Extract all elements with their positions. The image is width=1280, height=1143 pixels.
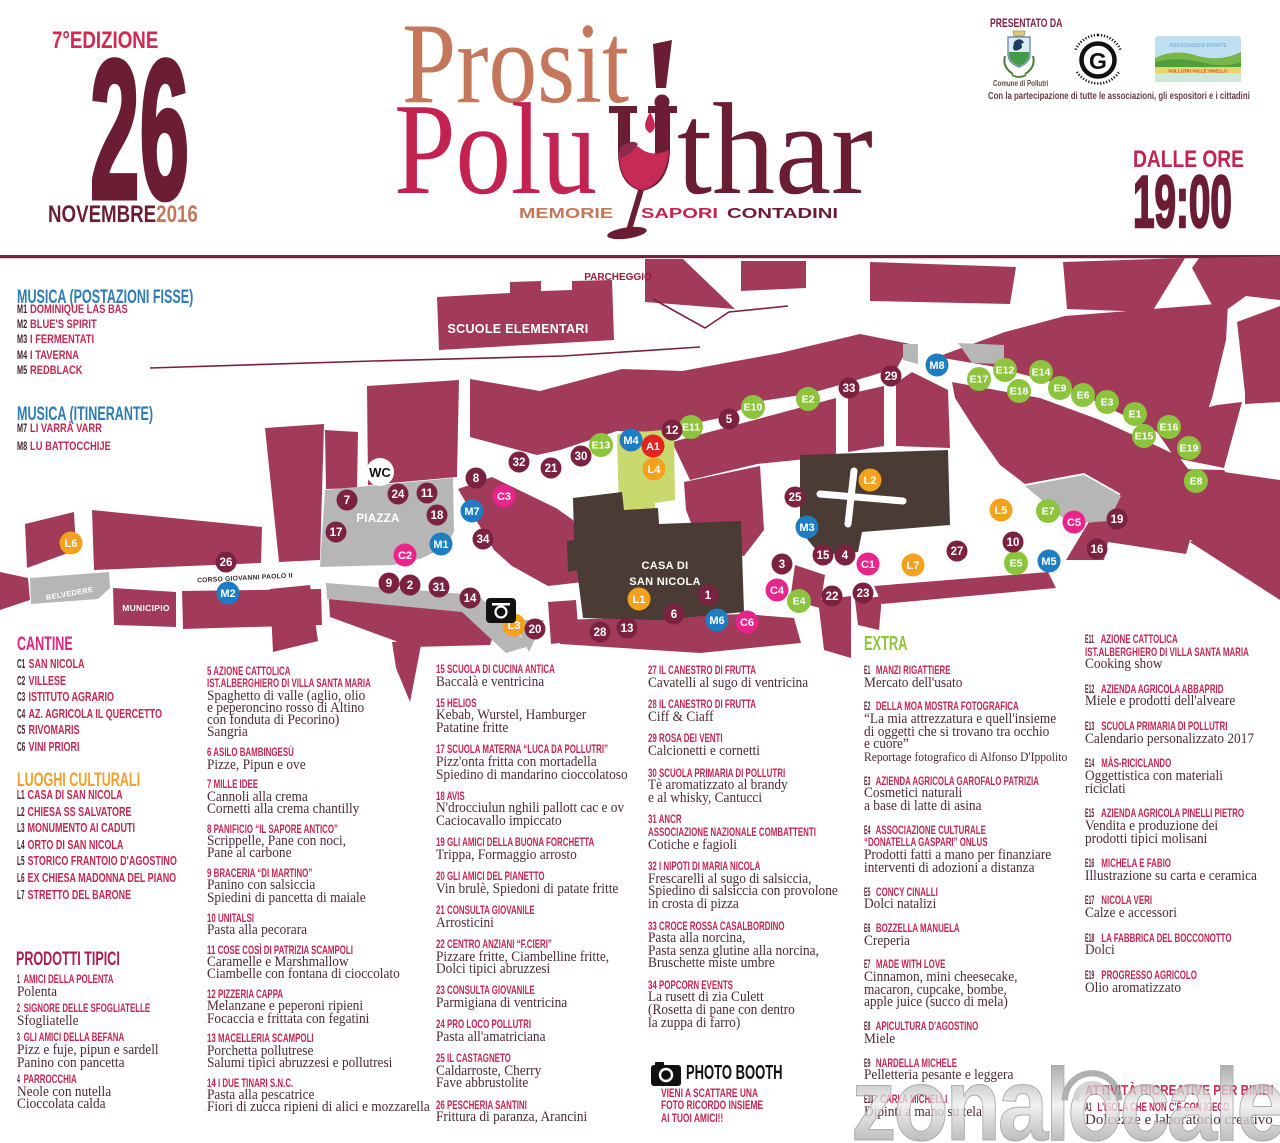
- svg-text:A1: A1: [646, 441, 660, 453]
- svg-text:C6: C6: [740, 617, 754, 629]
- svg-text:MUNICIPIO: MUNICIPIO: [122, 603, 170, 613]
- svg-text:M6: M6: [709, 615, 724, 627]
- svg-text:E4: E4: [793, 596, 806, 608]
- svg-text:E5: E5: [1010, 558, 1023, 570]
- svg-text:SAPORI: SAPORI: [641, 205, 718, 222]
- svg-text:SCUOLE ELEMENTARI: SCUOLE ELEMENTARI: [448, 322, 589, 336]
- svg-text:5: 5: [726, 414, 733, 426]
- svg-text:C1: C1: [861, 559, 875, 571]
- svg-text:11: 11: [421, 488, 434, 500]
- svg-text:14: 14: [464, 593, 477, 605]
- svg-text:E13: E13: [592, 440, 611, 452]
- svg-text:24: 24: [392, 489, 405, 501]
- svg-text:E2: E2: [802, 394, 815, 406]
- svg-text:E14: E14: [1032, 367, 1051, 379]
- svg-text:E1: E1: [1129, 409, 1142, 421]
- svg-text:21: 21: [545, 463, 558, 475]
- svg-text:3: 3: [779, 559, 785, 571]
- svg-text:19: 19: [1111, 514, 1124, 526]
- svg-text:7: 7: [344, 495, 350, 507]
- svg-text:15: 15: [817, 550, 830, 562]
- svg-text:29: 29: [885, 371, 898, 383]
- svg-text:E3: E3: [1101, 397, 1114, 409]
- svg-text:PARCHEGGIO: PARCHEGGIO: [584, 272, 652, 283]
- svg-text:M4: M4: [623, 435, 639, 447]
- svg-text:34: 34: [477, 534, 490, 546]
- svg-text:22: 22: [826, 591, 839, 603]
- svg-text:E8: E8: [1190, 476, 1203, 488]
- svg-text:18: 18: [431, 510, 444, 522]
- svg-text:13: 13: [621, 623, 634, 635]
- svg-text:M8: M8: [929, 360, 944, 372]
- svg-text:28: 28: [594, 627, 607, 639]
- svg-text:30: 30: [575, 451, 588, 463]
- svg-text:17: 17: [330, 527, 343, 539]
- svg-text:MEMORIE: MEMORIE: [519, 205, 613, 222]
- svg-text:27: 27: [951, 546, 964, 558]
- svg-text:M2: M2: [220, 588, 235, 600]
- svg-text:12: 12: [666, 425, 679, 437]
- svg-text:E6: E6: [1077, 390, 1090, 402]
- svg-text:10: 10: [1007, 537, 1020, 549]
- svg-text:M5: M5: [1041, 556, 1056, 568]
- svg-text:31: 31: [433, 582, 446, 594]
- svg-text:L1: L1: [633, 594, 646, 606]
- svg-text:G: G: [1089, 48, 1107, 74]
- svg-text:8: 8: [473, 473, 480, 485]
- svg-text:1: 1: [705, 590, 712, 602]
- svg-text:M1: M1: [433, 539, 448, 551]
- svg-text:E11: E11: [682, 422, 700, 434]
- svg-text:33: 33: [843, 383, 856, 395]
- svg-text:4: 4: [842, 550, 849, 562]
- svg-text:E18: E18: [1010, 386, 1029, 398]
- svg-text:WC: WC: [369, 465, 391, 480]
- svg-text:PIAZZA: PIAZZA: [356, 513, 399, 525]
- svg-text:CORSO GIOVANNI PAOLO II: CORSO GIOVANNI PAOLO II: [197, 573, 293, 585]
- svg-text:E7: E7: [1042, 506, 1055, 518]
- svg-text:L5: L5: [995, 505, 1008, 517]
- svg-text:E19: E19: [1180, 443, 1199, 455]
- svg-text:E9: E9: [1054, 383, 1067, 395]
- svg-text:E15: E15: [1135, 431, 1154, 443]
- svg-text:CASA DI: CASA DI: [642, 560, 689, 572]
- svg-text:L4: L4: [648, 464, 662, 476]
- svg-text:L6: L6: [65, 538, 78, 550]
- svg-text:32: 32: [513, 457, 526, 469]
- svg-text:2: 2: [407, 580, 413, 592]
- svg-text:M7: M7: [464, 506, 479, 518]
- svg-text:SAN NICOLA: SAN NICOLA: [629, 576, 700, 588]
- svg-text:C2: C2: [398, 550, 412, 562]
- svg-text:E12: E12: [996, 365, 1015, 377]
- svg-text:6: 6: [671, 609, 677, 621]
- svg-text:E16: E16: [1160, 422, 1179, 434]
- svg-text:ASSOCIAZIONI RIUNITE: ASSOCIAZIONI RIUNITE: [1169, 43, 1227, 49]
- svg-text:C4: C4: [770, 585, 785, 597]
- svg-text:C5: C5: [1067, 517, 1081, 529]
- svg-text:25: 25: [789, 492, 802, 504]
- svg-text:16: 16: [1091, 544, 1104, 556]
- svg-text:E10: E10: [744, 402, 763, 414]
- svg-text:M3: M3: [799, 522, 814, 534]
- svg-text:26: 26: [220, 557, 233, 569]
- svg-text:23: 23: [857, 588, 870, 600]
- svg-text:20: 20: [529, 624, 542, 636]
- svg-text:POLLUTRI VALLE SINELLO: POLLUTRI VALLE SINELLO: [1169, 69, 1228, 74]
- svg-text:9: 9: [386, 578, 392, 590]
- svg-text:CONTADINI: CONTADINI: [727, 205, 838, 222]
- svg-text:E17: E17: [970, 374, 989, 386]
- svg-text:L2: L2: [864, 475, 877, 487]
- svg-text:C3: C3: [497, 491, 511, 503]
- svg-text:L7: L7: [907, 560, 920, 572]
